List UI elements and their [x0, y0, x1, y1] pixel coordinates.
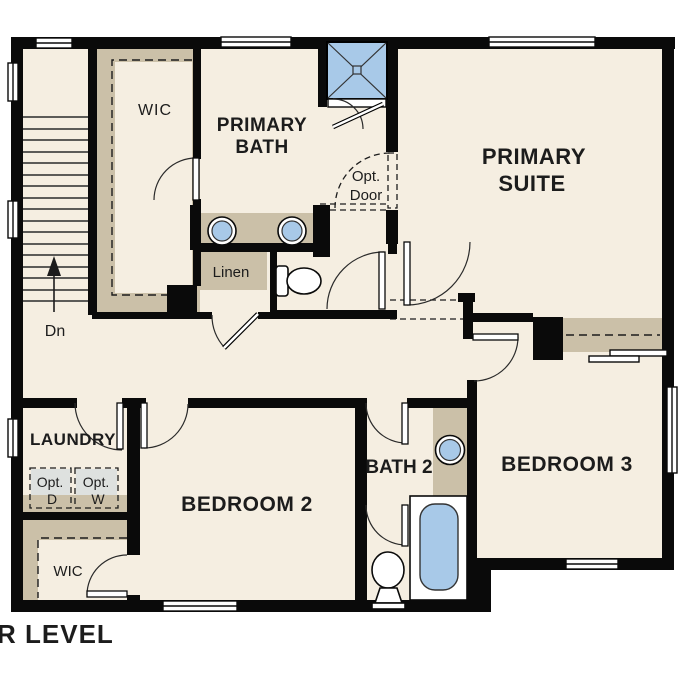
bath2-label: BATH 2 — [365, 457, 432, 478]
window — [36, 38, 72, 48]
toilet-icon — [372, 552, 405, 609]
window — [8, 419, 18, 457]
wic-lower-label: WIC — [53, 563, 82, 580]
window — [667, 387, 677, 473]
bathtub-icon — [410, 496, 467, 600]
linen-label: Linen — [213, 264, 250, 281]
opt-dryer-label-line2: D — [47, 491, 57, 507]
vanity-sink-icon — [208, 217, 236, 245]
opt-dryer-label-line1: Opt. — [37, 474, 63, 490]
floor-plan-drawing: WIC PRIMARY BATH PRIMARY SUITE Opt. Door… — [0, 0, 687, 687]
opt-washer-label-line1: Opt. — [83, 474, 109, 490]
stairs-dn-label: Dn — [45, 323, 65, 340]
opt-door-label-line1: Opt. — [352, 168, 380, 185]
wic-upper-inner — [115, 62, 192, 293]
laundry-label: LAUNDRY — [30, 430, 116, 449]
opt-door-label-line2: Door — [350, 187, 383, 204]
primary-bath-label-line1: PRIMARY — [217, 115, 307, 136]
floor-plan-page: WIC PRIMARY BATH PRIMARY SUITE Opt. Door… — [0, 0, 687, 687]
window — [163, 601, 237, 611]
exterior-notch — [490, 570, 675, 620]
bedroom3-label: BEDROOM 3 — [501, 453, 633, 476]
bath2-sink-icon — [436, 436, 465, 465]
window — [489, 37, 595, 47]
window — [8, 201, 18, 238]
window — [566, 559, 618, 569]
window — [221, 37, 291, 47]
primary-suite-label-line2: SUITE — [498, 171, 565, 196]
plan-title: UPPER LEVEL — [0, 619, 114, 649]
opt-washer-label-line2: W — [91, 491, 105, 507]
primary-bath-label-line2: BATH — [235, 137, 288, 158]
toilet-icon — [276, 266, 321, 296]
wic-lower-shelf-left — [23, 520, 38, 602]
window — [8, 63, 18, 101]
primary-suite-label-line1: PRIMARY — [482, 144, 586, 169]
bedroom2-label: BEDROOM 2 — [181, 493, 313, 516]
vanity-sink-icon — [278, 217, 306, 245]
wic-upper-label: WIC — [138, 102, 172, 119]
wic-lower-shelf-top — [23, 520, 127, 540]
